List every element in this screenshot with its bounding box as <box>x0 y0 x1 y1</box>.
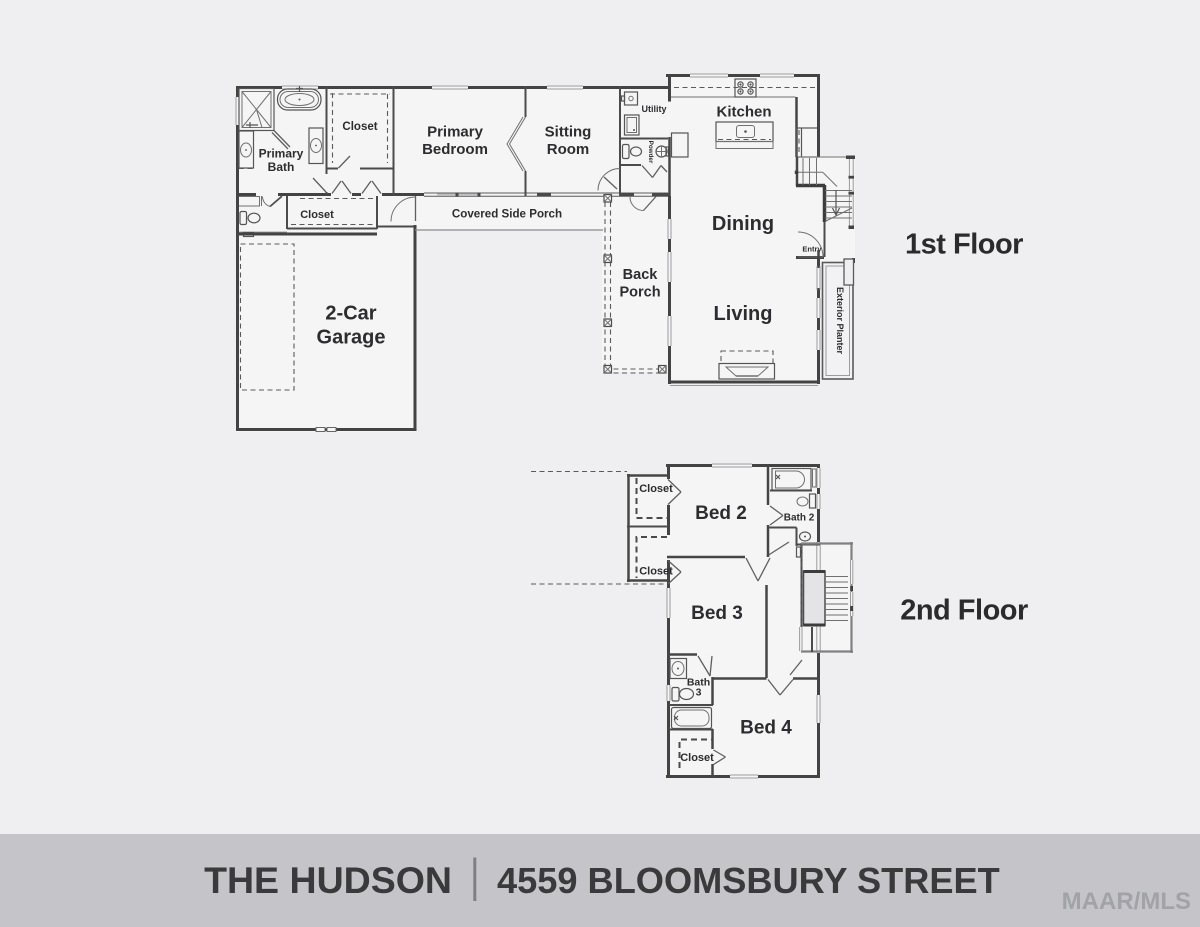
svg-text:Back: Back <box>623 267 659 283</box>
svg-text:Powder: Powder <box>647 141 654 164</box>
svg-text:2nd Floor: 2nd Floor <box>900 595 1028 627</box>
svg-text:Sitting: Sitting <box>545 124 592 141</box>
svg-text:Closet: Closet <box>639 483 673 495</box>
svg-text:Garage: Garage <box>317 327 386 349</box>
svg-text:Closet: Closet <box>639 566 673 578</box>
svg-text:Bed 2: Bed 2 <box>695 503 747 524</box>
svg-text:Closet: Closet <box>300 209 334 221</box>
svg-text:Exterior Planter: Exterior Planter <box>835 287 845 355</box>
svg-text:Bath: Bath <box>268 160 295 174</box>
svg-text:Closet: Closet <box>680 752 714 764</box>
svg-text:2-Car: 2-Car <box>325 303 376 325</box>
svg-text:Bed 3: Bed 3 <box>691 603 743 624</box>
svg-text:Kitchen: Kitchen <box>716 104 771 121</box>
svg-text:Covered Side Porch: Covered Side Porch <box>452 208 562 221</box>
svg-text:Utility: Utility <box>641 104 666 114</box>
svg-text:Dining: Dining <box>712 213 774 235</box>
svg-text:Porch: Porch <box>619 285 660 301</box>
svg-text:4559 BLOOMSBURY STREET: 4559 BLOOMSBURY STREET <box>497 860 1000 901</box>
svg-text:3: 3 <box>696 687 702 699</box>
svg-text:MAAR/MLS: MAAR/MLS <box>1062 888 1191 915</box>
svg-text:1st Floor: 1st Floor <box>905 229 1023 261</box>
svg-text:Room: Room <box>547 141 590 158</box>
svg-text:Primary: Primary <box>427 124 484 141</box>
svg-text:Living: Living <box>714 303 773 325</box>
svg-text:Bed 4: Bed 4 <box>740 718 792 739</box>
svg-text:Closet: Closet <box>342 121 377 133</box>
svg-text:Primary: Primary <box>259 147 304 161</box>
svg-text:Bath 2: Bath 2 <box>784 513 815 524</box>
svg-text:Bedroom: Bedroom <box>422 141 488 158</box>
svg-text:THE HUDSON: THE HUDSON <box>204 859 452 901</box>
